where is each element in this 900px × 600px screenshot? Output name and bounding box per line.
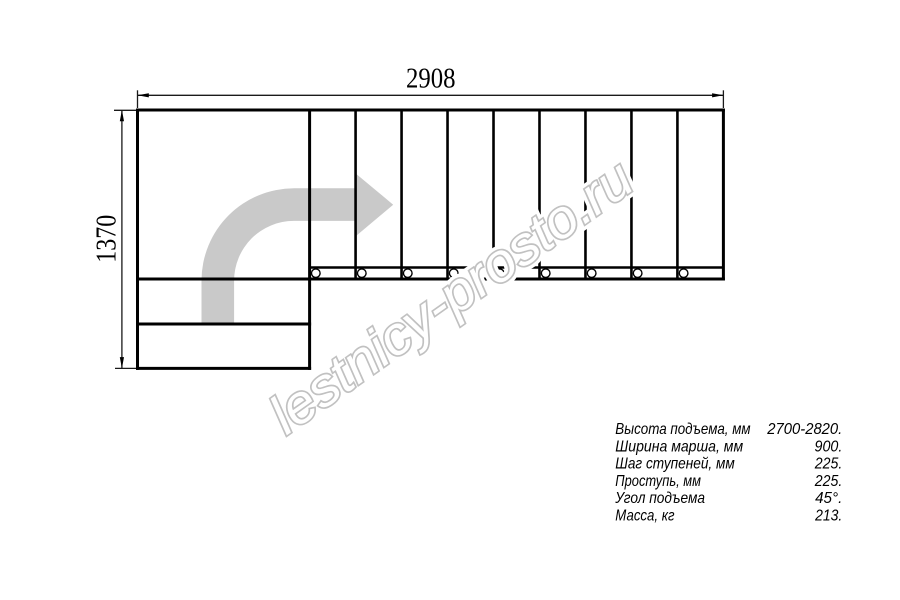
svg-text:2908: 2908	[406, 64, 456, 95]
svg-text:225.: 225.	[814, 456, 842, 473]
svg-text:2700-2820.: 2700-2820.	[766, 421, 842, 438]
svg-text:45°.: 45°.	[815, 490, 842, 507]
svg-text:Угол подъема: Угол подъема	[614, 490, 705, 507]
svg-text:1370: 1370	[91, 215, 122, 263]
svg-text:Ширина марша, мм: Ширина марша, мм	[615, 438, 743, 455]
svg-text:Проступь, мм: Проступь, мм	[615, 473, 701, 490]
svg-text:Масса, кг: Масса, кг	[615, 508, 674, 525]
svg-text:Высота подъема, мм: Высота подъема, мм	[615, 421, 750, 438]
svg-text:225.: 225.	[814, 473, 842, 490]
svg-text:900.: 900.	[815, 438, 843, 455]
svg-text:Шаг ступеней, мм: Шаг ступеней, мм	[615, 456, 734, 473]
svg-text:213.: 213.	[814, 508, 842, 525]
